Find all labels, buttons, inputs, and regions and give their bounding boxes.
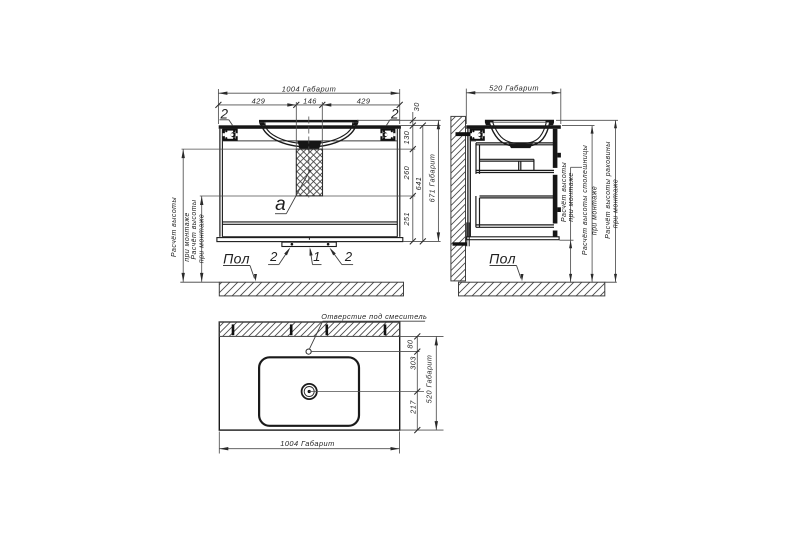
svg-text:Пол: Пол (223, 250, 250, 266)
svg-text:303: 303 (409, 356, 418, 370)
svg-text:Пол: Пол (489, 250, 516, 266)
svg-text:2: 2 (390, 106, 399, 121)
svg-text:Расчёт высоты столешницы: Расчёт высоты столешницы (582, 144, 589, 255)
svg-text:2: 2 (269, 249, 278, 264)
svg-text:671 Габарит: 671 Габарит (428, 154, 437, 203)
svg-text:520 Габарит: 520 Габарит (489, 84, 539, 93)
svg-text:520 Габарит: 520 Габарит (425, 355, 434, 404)
svg-text:при монтаже: при монтаже (591, 186, 598, 235)
svg-text:1: 1 (313, 249, 321, 264)
svg-text:80: 80 (406, 339, 415, 349)
svg-text:30: 30 (412, 102, 421, 112)
svg-text:а: а (275, 194, 286, 215)
svg-text:при монтаже: при монтаже (612, 179, 619, 228)
svg-text:Отверстие под смеситель: Отверстие под смеситель (321, 312, 427, 321)
svg-text:2: 2 (220, 106, 229, 121)
svg-text:429: 429 (357, 96, 371, 105)
svg-text:2: 2 (344, 249, 353, 264)
svg-text:260: 260 (402, 165, 411, 180)
svg-text:641: 641 (414, 177, 423, 191)
svg-text:130: 130 (402, 130, 411, 144)
svg-text:Расчёт высоты раковины: Расчёт высоты раковины (605, 141, 612, 239)
svg-text:Расчёт высоты: Расчёт высоты (171, 197, 178, 258)
svg-text:1004 Габарит: 1004 Габарит (280, 439, 334, 448)
svg-text:1004 Габарит: 1004 Габарит (282, 84, 336, 93)
svg-text:при монтаже: при монтаже (198, 214, 205, 263)
svg-text:146: 146 (303, 96, 317, 105)
svg-text:251: 251 (402, 212, 411, 227)
svg-text:217: 217 (409, 400, 418, 415)
svg-text:при монтаже: при монтаже (568, 172, 575, 221)
svg-text:429: 429 (252, 96, 266, 105)
svg-text:Расчёт высоты: Расчёт высоты (561, 162, 568, 223)
svg-text:Расчёт высоты: Расчёт высоты (191, 199, 198, 260)
